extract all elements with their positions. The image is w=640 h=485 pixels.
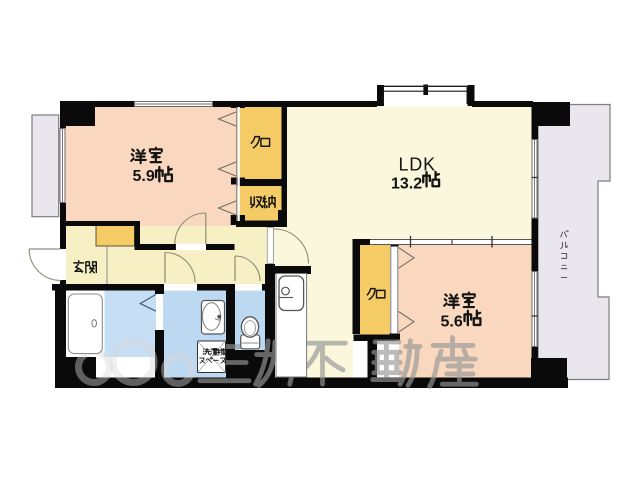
svg-text:LDK: LDK (399, 155, 436, 175)
svg-text:5.6: 5.6 (441, 314, 463, 331)
svg-text:13.2: 13.2 (391, 175, 422, 192)
svg-text:5.9: 5.9 (133, 168, 155, 185)
